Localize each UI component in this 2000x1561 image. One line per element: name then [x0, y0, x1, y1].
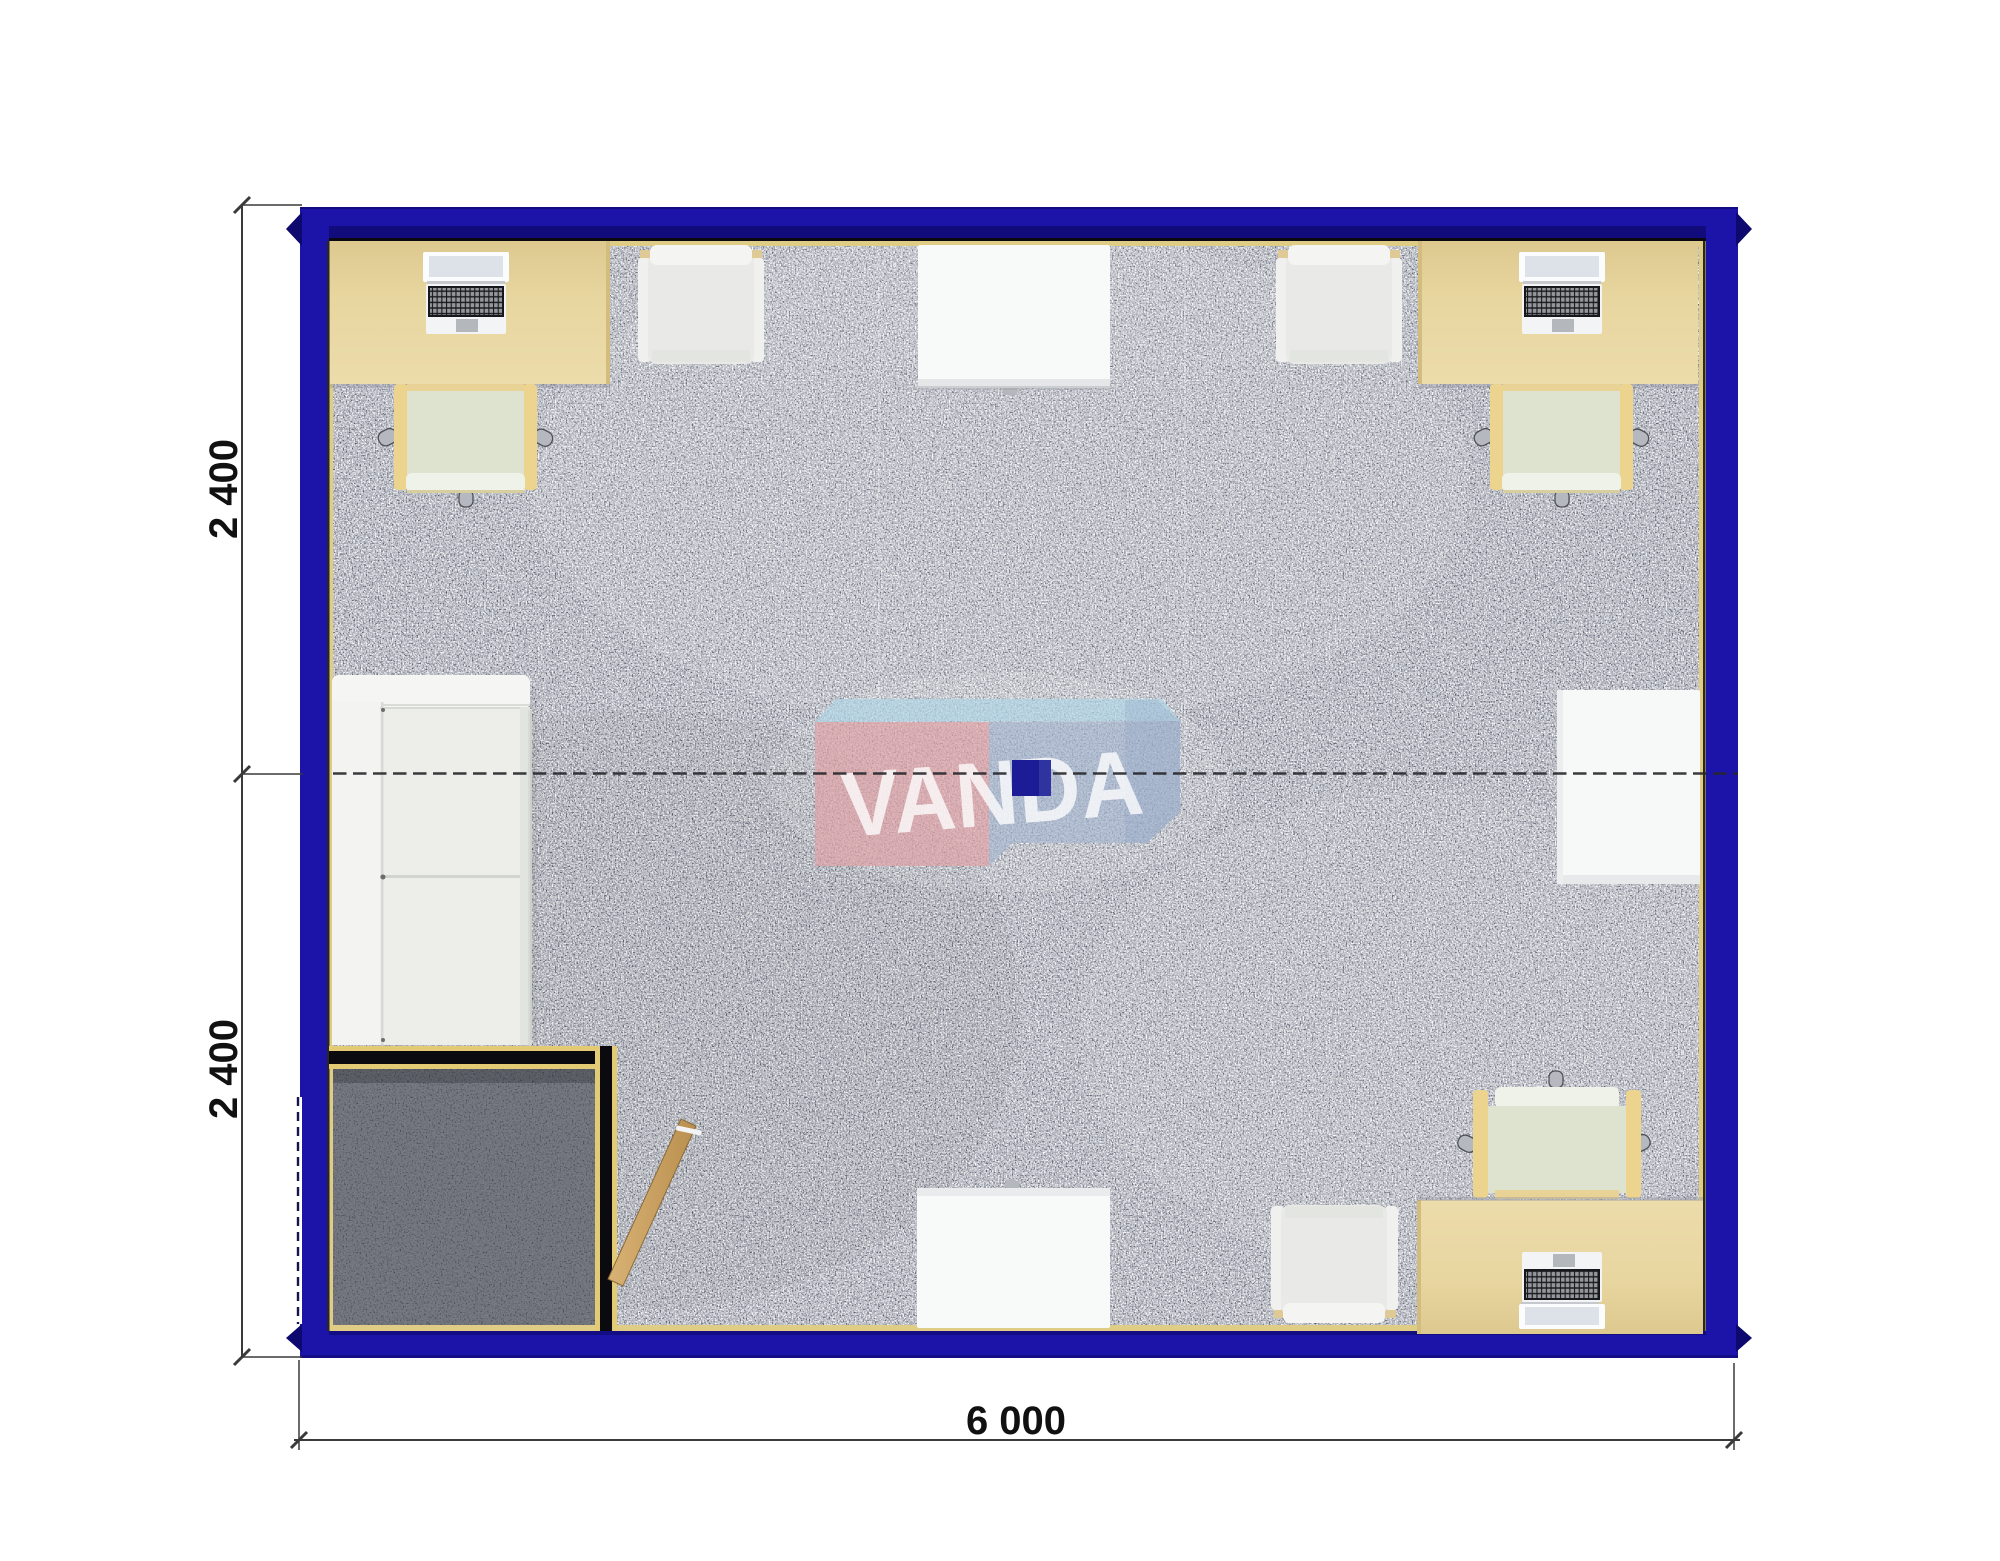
svg-text:6 000: 6 000 — [966, 1399, 1066, 1443]
svg-text:2 400: 2 400 — [202, 439, 246, 539]
svg-text:2 400: 2 400 — [202, 1019, 246, 1119]
